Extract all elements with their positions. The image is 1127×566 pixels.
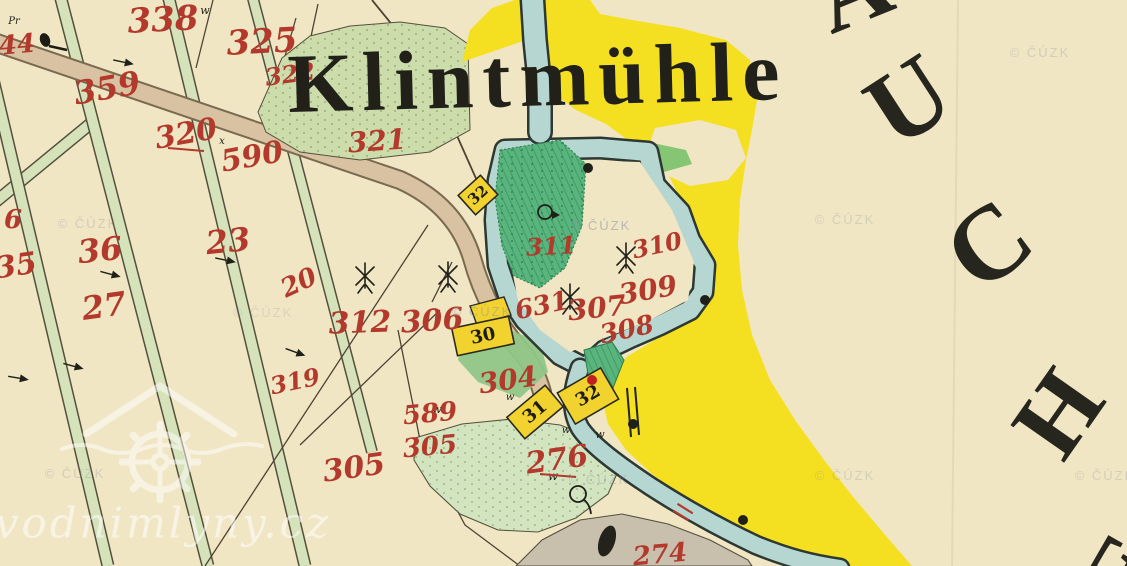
cuzk-watermark: © ČÚZK bbox=[45, 466, 106, 481]
boundary-stone bbox=[583, 163, 593, 173]
parcel-number: 35 bbox=[0, 246, 39, 286]
parcel-number: 344 bbox=[0, 29, 36, 64]
parcel-number: 27 bbox=[78, 284, 128, 328]
parcel-number: 338 bbox=[127, 0, 200, 42]
cuzk-watermark: © ČÚZK bbox=[233, 305, 294, 320]
parcel-number: 312 bbox=[328, 304, 392, 341]
cuzk-watermark: © ČÚZK bbox=[571, 218, 632, 233]
parcel-number: 16 bbox=[0, 205, 22, 235]
cuzk-watermark: © ČÚZK bbox=[569, 472, 630, 487]
boundary-stone bbox=[738, 515, 748, 525]
parcel-number: 305 bbox=[402, 430, 459, 465]
cuzk-watermark: © ČÚZK bbox=[815, 212, 876, 227]
map-canvas[interactable]: 30313232 Prwxwwwww 338325322359344320590… bbox=[0, 0, 1127, 566]
parcel-number: 23 bbox=[203, 220, 252, 263]
cuzk-watermark: © ČÚZK bbox=[1075, 468, 1127, 483]
parcel-number: 589 bbox=[402, 397, 459, 432]
cuzk-watermark: © ČÚZK bbox=[452, 304, 513, 319]
parcel-number: 36 bbox=[76, 229, 124, 271]
parcel-number: 274 bbox=[631, 538, 689, 566]
cuzk-watermark: © ČÚZK bbox=[1010, 45, 1071, 60]
cuzk-watermark: © ČÚZK bbox=[815, 468, 876, 483]
cuzk-watermark: © ČÚZK bbox=[58, 216, 119, 231]
boundary-stone bbox=[628, 419, 638, 429]
map-letter-mark: w bbox=[562, 425, 571, 436]
map-letter-mark: Pr bbox=[7, 16, 21, 27]
mill-dot bbox=[587, 375, 597, 385]
map-viewport[interactable]: 30313232 Prwxwwwww 338325322359344320590… bbox=[0, 0, 1127, 566]
map-title-layer: Klintmühle bbox=[287, 25, 790, 131]
map-letter-mark: w bbox=[200, 4, 210, 17]
parcel-number: 311 bbox=[525, 230, 577, 262]
map-title-text: Klintmühle bbox=[287, 25, 790, 131]
map-letter-mark: w bbox=[595, 428, 605, 441]
boundary-stone bbox=[700, 295, 710, 305]
site-watermark-text: vodnimlyny.cz bbox=[0, 499, 331, 548]
